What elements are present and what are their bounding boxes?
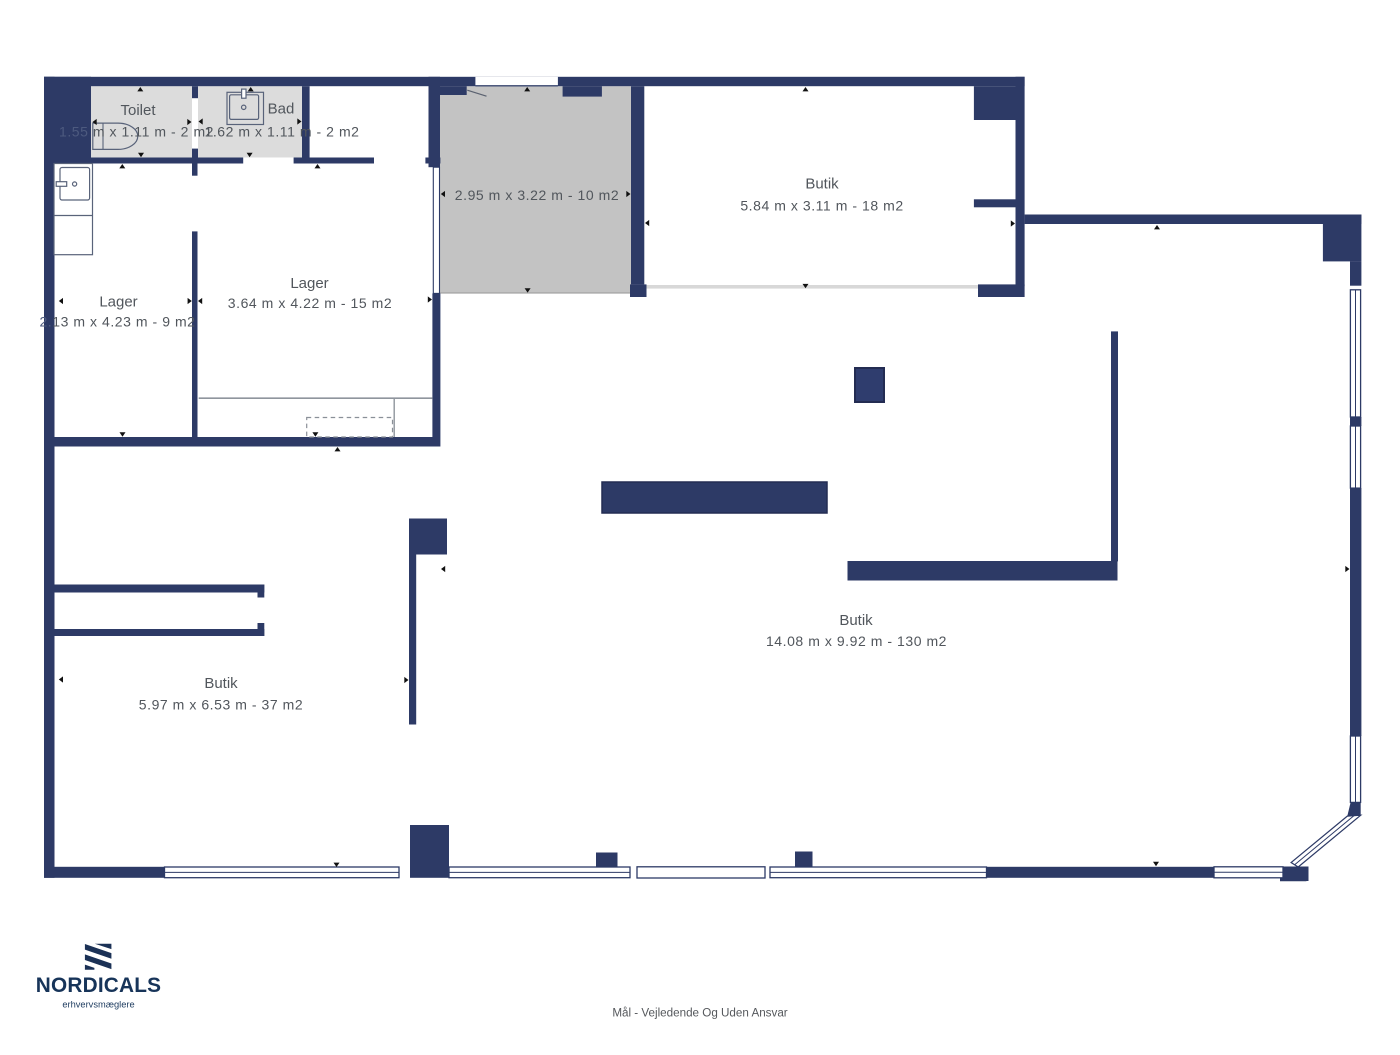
svg-text:3.64 m x 4.22 m - 15 m2: 3.64 m x 4.22 m - 15 m2 — [228, 295, 392, 311]
svg-text:2.13 m x 4.23 m - 9 m2: 2.13 m x 4.23 m - 9 m2 — [39, 314, 195, 330]
svg-text:5.97 m x 6.53 m - 37 m2: 5.97 m x 6.53 m - 37 m2 — [139, 696, 303, 712]
svg-text:Mål - Vejledende Og Uden Ansva: Mål - Vejledende Og Uden Ansvar — [612, 1006, 787, 1019]
svg-text:Butik: Butik — [805, 176, 839, 193]
svg-text:Bad: Bad — [268, 101, 295, 118]
svg-text:2.95 m x 3.22 m - 10 m2: 2.95 m x 3.22 m - 10 m2 — [455, 187, 619, 203]
svg-text:14.08 m x 9.92 m - 130 m2: 14.08 m x 9.92 m - 130 m2 — [766, 633, 947, 649]
svg-text:1.62 m x 1.11 m - 2 m2: 1.62 m x 1.11 m - 2 m2 — [204, 124, 359, 140]
svg-text:1.55 m x 1.11 m - 2 m2: 1.55 m x 1.11 m - 2 m2 — [59, 124, 214, 140]
svg-text:Toilet: Toilet — [120, 102, 156, 119]
svg-text:5.84 m x 3.11 m - 18 m2: 5.84 m x 3.11 m - 18 m2 — [740, 197, 903, 213]
svg-text:Lager: Lager — [99, 293, 137, 310]
svg-text:Lager: Lager — [290, 275, 328, 292]
svg-text:Butik: Butik — [839, 612, 873, 629]
svg-text:Butik: Butik — [204, 675, 238, 692]
svg-text:NORDICALS: NORDICALS — [36, 974, 161, 997]
svg-text:erhvervsmæglere: erhvervsmæglere — [62, 999, 134, 1009]
